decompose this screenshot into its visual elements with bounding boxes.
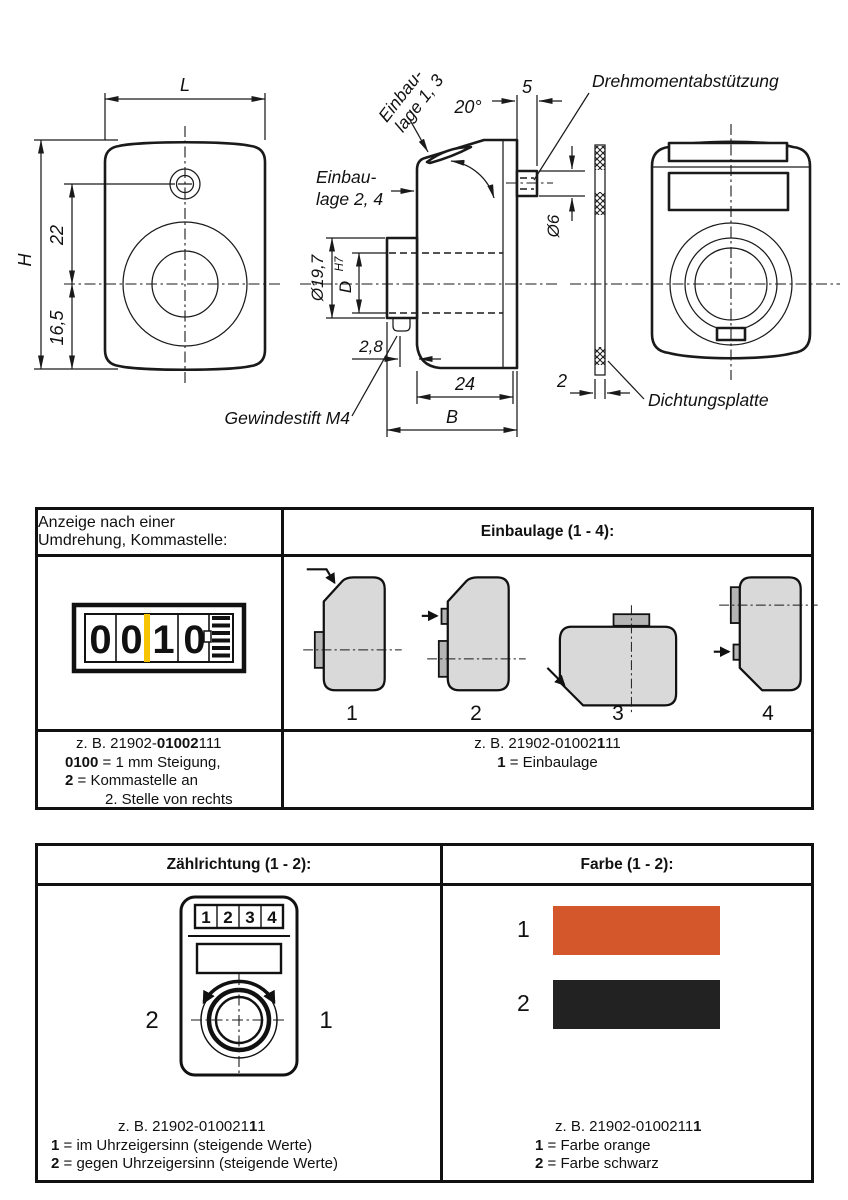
- counter-digit: 1: [152, 618, 174, 662]
- note-text: = Farbe orange: [543, 1137, 650, 1154]
- color-cell: 1 2: [443, 886, 811, 1086]
- header-line: Zählrichtung (1 - 2):: [38, 856, 440, 874]
- einbaulage-position-1-label: 1: [332, 702, 372, 726]
- dial-digit: 1: [201, 908, 210, 927]
- label-drehmoment: Drehmomentabstützung: [592, 71, 779, 91]
- note-bold: 1: [693, 1118, 701, 1135]
- options-table-display-einbaulage: Anzeige nach einer Umdrehung, Kommastell…: [35, 507, 814, 810]
- note-bold: 01002: [157, 735, 199, 752]
- direction-note: z. B. 21902-01002111 1 = im Uhrzeigersin…: [38, 1086, 440, 1174]
- note-line: 2 = Kommastelle an: [38, 772, 281, 791]
- dim-d6: Ø6: [544, 214, 563, 238]
- display-note: z. B. 21902-01002111 0100 = 1 mm Steigun…: [38, 732, 281, 809]
- note-text: = Kommastelle an: [73, 772, 198, 789]
- display-column-header: Anzeige nach einer Umdrehung, Kommastell…: [38, 510, 281, 557]
- dim-2: 2: [556, 371, 567, 391]
- comma-marker: [144, 614, 150, 662]
- note-line: 1 = Farbe orange: [443, 1137, 811, 1156]
- note-text: = 1 mm Steigung,: [98, 754, 220, 771]
- note-text: z. B. 21902-010021: [118, 1118, 249, 1135]
- note-bold: 1: [597, 735, 605, 752]
- color-1-label: 1: [517, 916, 530, 943]
- note-line: 2. Stelle von rechts: [38, 791, 281, 810]
- color-1-swatch-orange: [553, 906, 720, 955]
- front-view: L H 22 16,5: [15, 75, 282, 386]
- display-column: Anzeige nach einer Umdrehung, Kommastell…: [38, 510, 284, 807]
- note-text: = gegen Uhrzeigersinn (steigende Werte): [59, 1155, 338, 1172]
- side-body-outline: [417, 140, 517, 368]
- header-line: Einbaulage (1 - 4):: [284, 523, 811, 541]
- einbaulage-position-4-figure: [712, 562, 824, 702]
- dim-28: 2,8: [358, 337, 383, 356]
- dim-165: 16,5: [47, 310, 67, 346]
- dial-digit: 3: [245, 908, 254, 927]
- side-view: 5 Ø6 20° Einbau- lage 1, 3 Einbau- lage …: [225, 59, 585, 437]
- seal-plate-outline: [595, 145, 605, 375]
- note-text: 1: [257, 1118, 265, 1135]
- dim-5: 5: [522, 77, 533, 97]
- seal-hatch: [595, 192, 605, 215]
- dim-L: L: [180, 75, 190, 95]
- note-line: 0100 = 1 mm Steigung,: [38, 754, 281, 773]
- side-hub: [387, 238, 417, 318]
- note-text: 111: [199, 735, 222, 752]
- seal-hatch: [595, 146, 605, 170]
- einbaulage-position-2-figure: [420, 562, 532, 702]
- dim-D: D: [336, 281, 355, 293]
- drehmoment-leader: [534, 93, 589, 180]
- technical-drawing: L H 22 16,5 5 Ø: [0, 0, 848, 470]
- seal-hatch: [595, 347, 605, 365]
- direction-column: Zählrichtung (1 - 2): 1 2 3 4: [38, 846, 443, 1180]
- note-line: z. B. 21902-01002111: [284, 735, 811, 754]
- einbaulage-position-3-label: 3: [598, 702, 638, 726]
- display-window: [197, 944, 281, 973]
- direction-1-label: 1: [319, 1007, 332, 1034]
- dial-digit: 4: [267, 908, 277, 927]
- einbaulage-position-3-figure: [542, 599, 694, 717]
- note-text: 11: [605, 735, 621, 752]
- einbaulage-13-arrow: [410, 120, 428, 152]
- catalog-page: { "drawing": { "front": { "L": "L", "H":…: [0, 0, 848, 1200]
- counter-digit: 0: [89, 618, 111, 662]
- color-2-swatch-black: [553, 980, 720, 1029]
- note-line: 1 = im Uhrzeigersinn (steigende Werte): [38, 1137, 440, 1156]
- dim-d197: Ø19,7: [308, 254, 327, 302]
- direction-figure: 1 2 3 4 2 1: [114, 892, 364, 1082]
- note-line: 1 = Einbaulage: [284, 754, 811, 773]
- note-line: 2 = Farbe schwarz: [443, 1155, 811, 1174]
- note-text: z. B. 21902-01002: [474, 735, 597, 752]
- mounting-arrow: [307, 569, 335, 582]
- counter-digit: 0: [183, 618, 205, 662]
- dim-24: 24: [454, 374, 475, 394]
- header-line: Anzeige nach einer: [38, 514, 281, 532]
- note-line: z. B. 21902-01002111: [443, 1118, 811, 1137]
- direction-2-label: 2: [145, 1007, 158, 1034]
- direction-header: Zählrichtung (1 - 2):: [38, 846, 440, 886]
- label-einbaulage-13: Einbau- lage 1, 3: [374, 59, 447, 138]
- header-line: Farbe (1 - 2):: [443, 856, 811, 874]
- einbaulage-column: Einbaulage (1 - 4):: [284, 510, 811, 807]
- dim-D-tolerance: H7: [334, 256, 346, 271]
- header-line: Umdrehung, Kommastelle:: [38, 532, 281, 550]
- back-top-bar: [669, 143, 787, 161]
- note-text: z. B. 21902-0100211: [555, 1118, 693, 1135]
- color-header: Farbe (1 - 2):: [443, 846, 811, 886]
- color-2-label: 2: [517, 990, 530, 1017]
- einbaulage-note: z. B. 21902-01002111 1 = Einbaulage: [284, 732, 811, 772]
- dim-20deg: 20°: [453, 97, 481, 117]
- counter-display: 0 0 1 0: [70, 599, 248, 679]
- note-text: z. B. 21902-: [76, 735, 157, 752]
- note-text: = Einbaulage: [506, 754, 598, 771]
- note-text: = im Uhrzeigersinn (steigende Werte): [59, 1137, 312, 1154]
- label-gewindestift: Gewindestift M4: [225, 408, 351, 428]
- indicator-body: [324, 577, 385, 690]
- note-line: z. B. 21902-01002111: [38, 735, 281, 754]
- label-einbaulage-24-l1: Einbau-: [316, 167, 376, 187]
- options-table-direction-color: Zählrichtung (1 - 2): 1 2 3 4: [35, 843, 814, 1183]
- einbaulage-header: Einbaulage (1 - 4):: [284, 510, 811, 557]
- counter-digit: 0: [120, 618, 142, 662]
- einbaulage-position-1-figure: [296, 562, 408, 702]
- counter-cell: 0 0 1 0: [38, 557, 281, 732]
- color-column: Farbe (1 - 2): 1 2 z. B. 21902-01002111 …: [443, 846, 811, 1180]
- indicator-body: [560, 627, 676, 706]
- indicator-body: [740, 577, 801, 690]
- einbaulage-cell: 1 2 3 4: [284, 557, 811, 732]
- indicator-body: [448, 577, 509, 690]
- label-dichtungsplatte: Dichtungsplatte: [648, 390, 769, 410]
- color-option-1: 1: [443, 906, 811, 955]
- note-bold: 1: [497, 754, 505, 771]
- side-setscrew-notch: [393, 318, 410, 331]
- dial-digit: 2: [223, 908, 232, 927]
- dim-B: B: [446, 407, 458, 427]
- note-bold: 0100: [65, 754, 98, 771]
- direction-cell: 1 2 3 4 2 1: [38, 886, 440, 1086]
- einbaulage-position-2-label: 2: [456, 702, 496, 726]
- note-text: = Farbe schwarz: [543, 1155, 658, 1172]
- note-line: 2 = gegen Uhrzeigersinn (steigende Werte…: [38, 1155, 440, 1174]
- back-view: Drehmomentabstützung: [534, 71, 840, 380]
- label-einbaulage-24-l2: lage 2, 4: [316, 189, 383, 209]
- color-note: z. B. 21902-01002111 1 = Farbe orange 2 …: [443, 1086, 811, 1174]
- einbaulage-position-4-label: 4: [748, 702, 788, 726]
- color-option-2: 2: [443, 980, 811, 1029]
- note-line: z. B. 21902-01002111: [38, 1118, 440, 1137]
- dim-H: H: [15, 253, 35, 267]
- back-window: [669, 173, 788, 210]
- note-text: 2. Stelle von rechts: [105, 791, 233, 808]
- dim-22: 22: [47, 225, 67, 246]
- counter-notch: [204, 631, 211, 642]
